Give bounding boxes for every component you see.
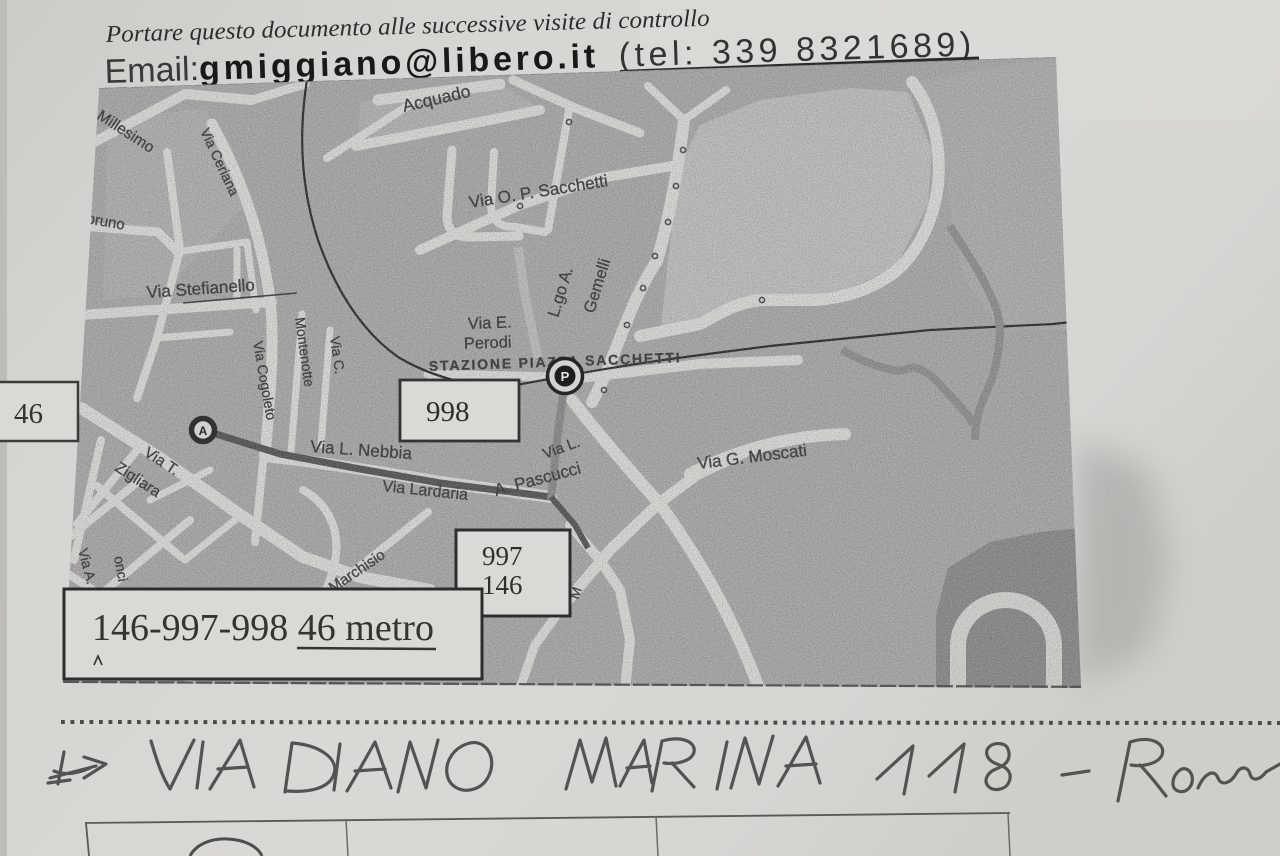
svg-text:997: 997: [482, 541, 523, 571]
svg-text:46: 46: [14, 398, 43, 430]
svg-text:A: A: [199, 424, 208, 438]
svg-text:146-997-998 46 metro: 146-997-998 46 metro: [92, 607, 434, 649]
svg-text:146: 146: [482, 570, 523, 600]
svg-text:P: P: [561, 369, 570, 384]
svg-text:998: 998: [426, 396, 470, 428]
